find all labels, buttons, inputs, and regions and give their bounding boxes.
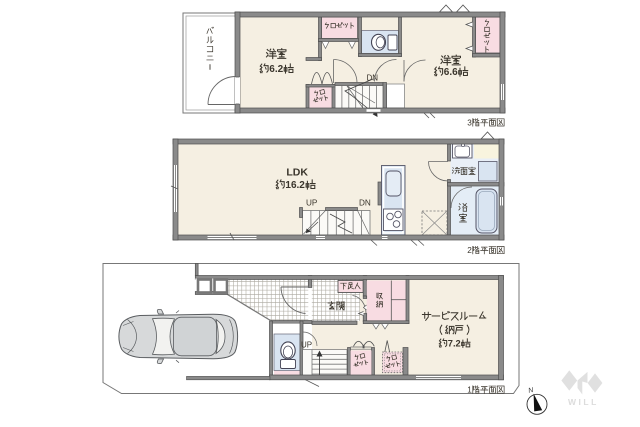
- svg-text:3: 3: [467, 118, 472, 127]
- svg-text:2: 2: [467, 246, 472, 255]
- svg-text:UP: UP: [306, 199, 318, 208]
- svg-text:UP: UP: [301, 341, 312, 350]
- svg-text:WILL: WILL: [568, 397, 599, 407]
- svg-text:16.2: 16.2: [285, 180, 305, 191]
- svg-text:6.2: 6.2: [269, 64, 283, 75]
- svg-text:DN: DN: [359, 199, 371, 208]
- svg-text:LDK: LDK: [286, 167, 308, 179]
- svg-text:6.6: 6.6: [444, 67, 458, 78]
- svg-text:7.2: 7.2: [448, 339, 461, 349]
- svg-text:DN: DN: [367, 74, 379, 83]
- svg-text:1: 1: [467, 386, 472, 395]
